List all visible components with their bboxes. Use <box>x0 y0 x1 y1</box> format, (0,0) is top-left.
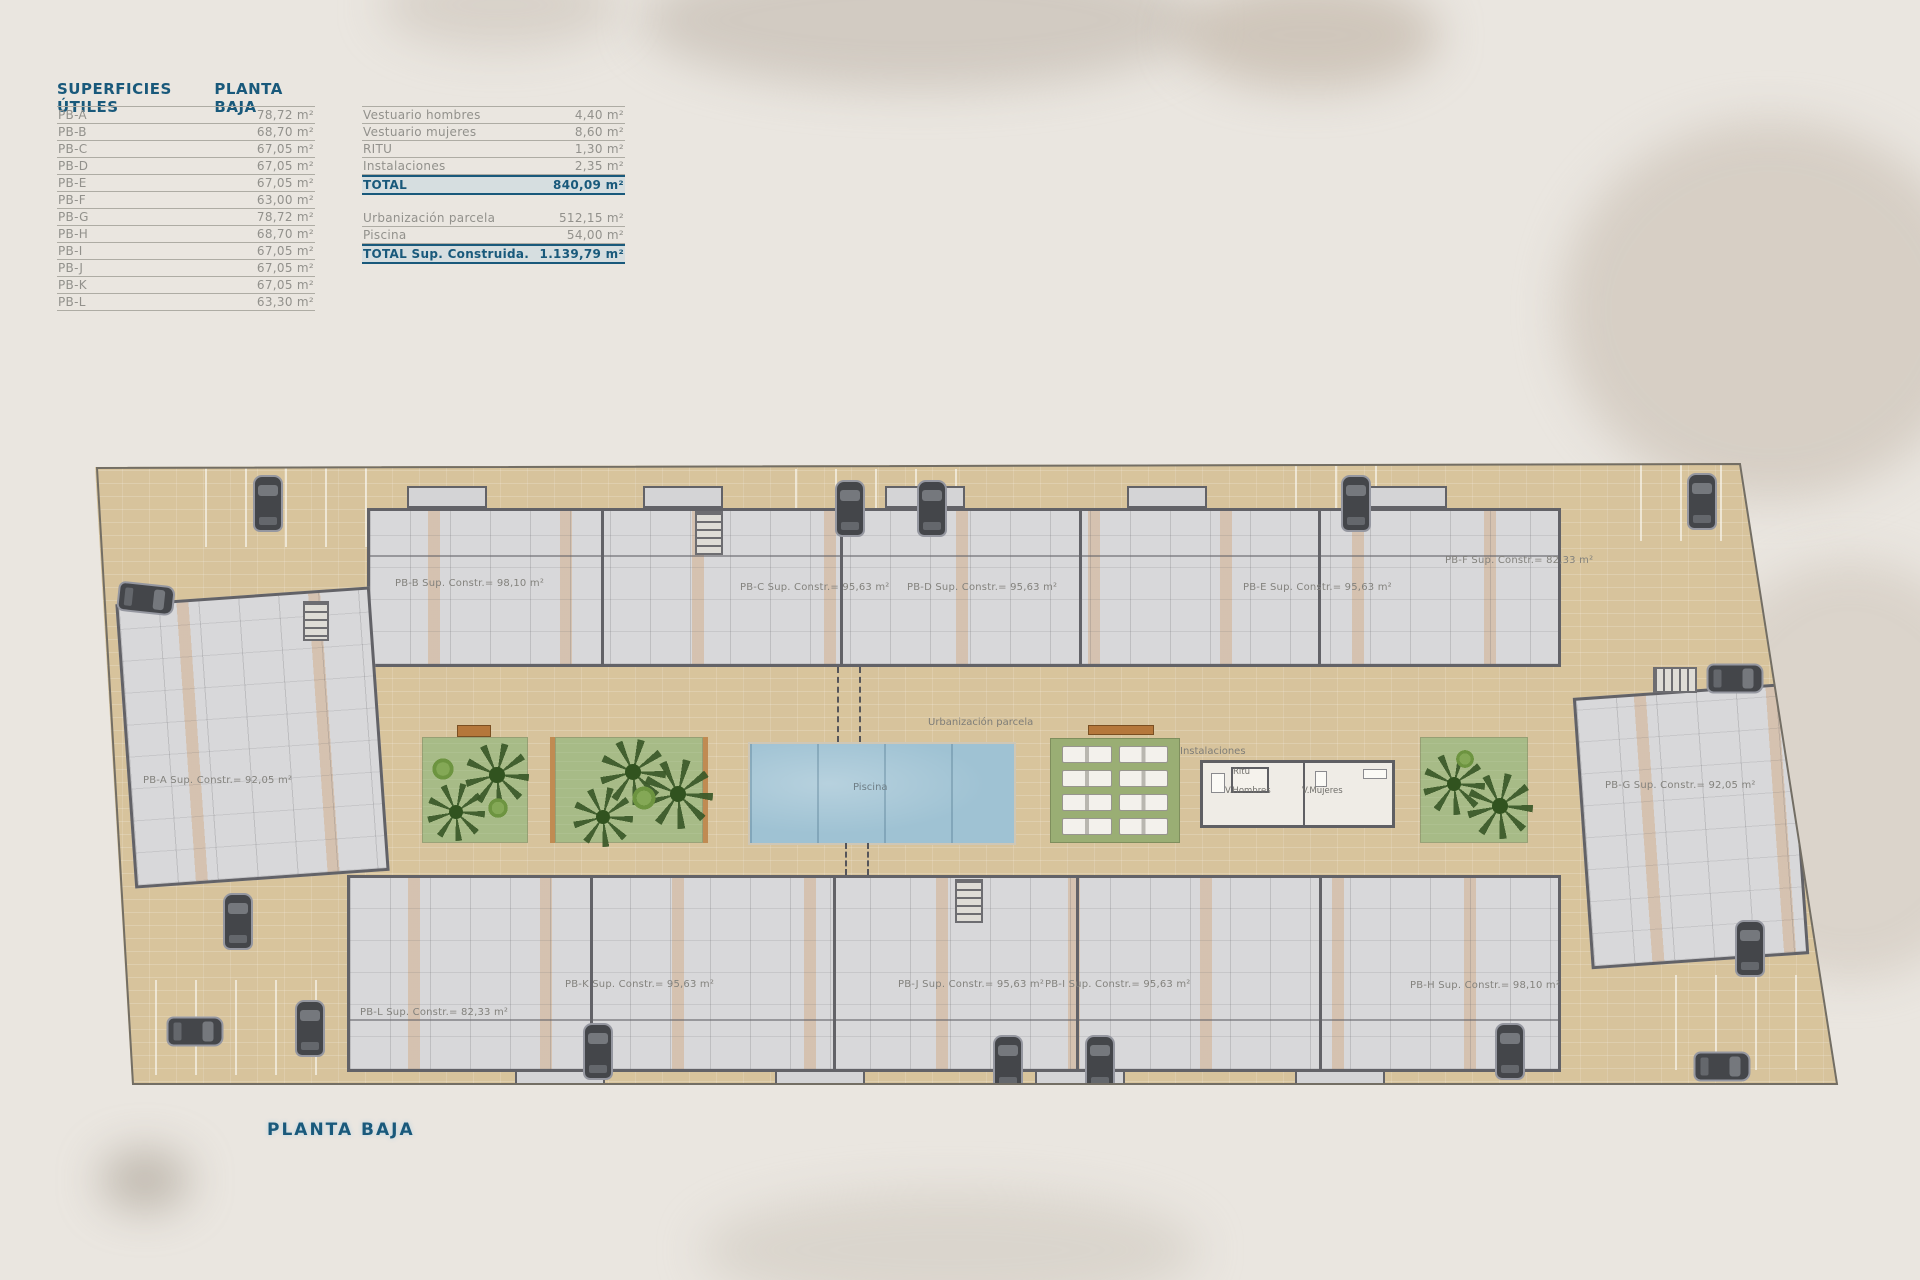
piscina-label: Piscina <box>853 782 888 793</box>
unit-pb-a <box>115 586 389 888</box>
watercolor-blob <box>640 0 1200 90</box>
lounger-icon <box>1062 770 1112 787</box>
watercolor-blob <box>1180 0 1440 90</box>
row-label: RITU <box>363 143 392 156</box>
row-value: 512,15 m² <box>559 212 624 225</box>
car-icon <box>993 1035 1023 1092</box>
row-value: 1,30 m² <box>575 143 624 156</box>
row-label: PB-F <box>58 194 86 207</box>
row-value: 68,70 m² <box>257 228 314 241</box>
car-icon <box>295 1000 325 1057</box>
row-label: PB-E <box>58 177 87 190</box>
shrub-icon <box>431 757 455 781</box>
table-row: PB-J67,05 m² <box>57 260 315 277</box>
table-row: RITU1,30 m² <box>362 141 625 158</box>
plan-caption: PLANTA BAJA <box>267 1120 415 1140</box>
lounger-icon <box>1119 770 1169 787</box>
shrub-icon <box>1455 749 1475 769</box>
bath-pod <box>407 486 487 508</box>
urbanizacion-label: Urbanización parcela <box>928 717 1033 728</box>
unit-label-pb-i: PB-I Sup. Constr.= 95,63 m² <box>1045 979 1190 990</box>
table-row-total: TOTAL840,09 m² <box>362 175 625 195</box>
parking-bays <box>205 467 375 547</box>
row-label: Urbanización parcela <box>363 212 495 225</box>
table-row: PB-D67,05 m² <box>57 158 315 175</box>
garage-pod <box>775 1070 865 1088</box>
row-label: PB-G <box>58 211 89 224</box>
unit-label-pb-c: PB-C Sup. Constr.= 95,63 m² <box>740 582 890 593</box>
unit-divider-wall <box>1319 878 1322 1069</box>
row-label: PB-C <box>58 143 87 156</box>
row-label: TOTAL Sup. Construida. <box>363 248 529 261</box>
car-icon <box>917 480 947 537</box>
instalaciones-label: Instalaciones <box>1180 746 1246 757</box>
row-label: PB-H <box>58 228 88 241</box>
table-row: PB-A78,72 m² <box>57 106 315 124</box>
row-value: 63,00 m² <box>257 194 314 207</box>
sun-deck <box>1050 738 1180 843</box>
unit-pb-g <box>1573 683 1809 970</box>
car-icon <box>1495 1023 1525 1080</box>
table-row: PB-C67,05 m² <box>57 141 315 158</box>
table-row: PB-F63,00 m² <box>57 192 315 209</box>
table-row: Vestuario hombres4,40 m² <box>362 106 625 124</box>
car-icon <box>167 1017 224 1047</box>
table-row: Vestuario mujeres8,60 m² <box>362 124 625 141</box>
shrub-icon <box>487 797 509 819</box>
unit-label-pb-h: PB-H Sup. Constr.= 98,10 m² <box>1410 980 1560 991</box>
unit-label-pb-f: PB-F Sup. Constr.= 82,33 m² <box>1445 555 1593 566</box>
row-value: 67,05 m² <box>257 143 314 156</box>
row-value: 2,35 m² <box>575 160 624 173</box>
watercolor-blob <box>1560 120 1920 500</box>
car-icon <box>1085 1035 1115 1092</box>
stairs <box>695 511 723 555</box>
watercolor-blob <box>100 1150 190 1210</box>
row-label: TOTAL <box>363 179 407 192</box>
row-label: PB-I <box>58 245 83 258</box>
corridor-wall <box>350 1019 1558 1021</box>
lounger-icon <box>1062 746 1112 763</box>
row-value: 78,72 m² <box>257 109 314 122</box>
unit-label-pb-l: PB-L Sup. Constr.= 82,33 m² <box>360 1007 508 1018</box>
row-value: 63,30 m² <box>257 296 314 309</box>
table-row: PB-E67,05 m² <box>57 175 315 192</box>
summary-table: Vestuario hombres4,40 m² Vestuario mujer… <box>362 106 625 264</box>
table-row: Urbanización parcela512,15 m² <box>362 210 625 227</box>
row-label: PB-D <box>58 160 88 173</box>
unit-label-pb-a: PB-A Sup. Constr.= 92,05 m² <box>143 775 292 786</box>
vestuario-hombres-label: V.Hombres <box>1225 786 1271 796</box>
watercolor-blob <box>700 1190 1200 1280</box>
car-icon <box>1694 1052 1751 1082</box>
unit-label-pb-e: PB-E Sup. Constr.= 95,63 m² <box>1243 582 1392 593</box>
row-value: 67,05 m² <box>257 262 314 275</box>
table-row: Instalaciones2,35 m² <box>362 158 625 175</box>
surfaces-table: PB-A78,72 m² PB-B68,70 m² PB-C67,05 m² P… <box>57 106 315 311</box>
floor-plan-sheet: SUPERFICIES ÚTILES PLANTA BAJA PB-A78,72… <box>0 0 1920 1280</box>
palm-tree-icon <box>427 783 485 841</box>
table-row-total: TOTAL Sup. Construida.1.139,79 m² <box>362 244 625 264</box>
garage-pod <box>1295 1070 1385 1088</box>
row-label: PB-J <box>58 262 83 275</box>
lounger-icon <box>1062 794 1112 811</box>
table-row: Piscina54,00 m² <box>362 227 625 244</box>
sink-fixture <box>1363 769 1387 779</box>
passage-dashed <box>845 843 869 875</box>
swimming-pool <box>748 742 1016 845</box>
unit-divider-wall <box>1079 511 1082 664</box>
vestuario-mujeres-label: V.Mujeres <box>1302 786 1343 796</box>
car-icon <box>1707 664 1764 694</box>
row-value: 54,00 m² <box>567 229 624 242</box>
row-label: PB-L <box>58 296 86 309</box>
row-label: Vestuario hombres <box>363 109 481 122</box>
lounger-icon <box>1119 746 1169 763</box>
table-row: PB-G78,72 m² <box>57 209 315 226</box>
car-icon <box>1687 473 1717 530</box>
row-label: PB-B <box>58 126 87 139</box>
stairs <box>955 879 983 923</box>
car-icon <box>116 581 176 617</box>
lounger-icon <box>1119 794 1169 811</box>
bath-pod <box>1367 486 1447 508</box>
corridor-wall <box>370 555 1558 557</box>
table-row: PB-H68,70 m² <box>57 226 315 243</box>
unit-label-pb-d: PB-D Sup. Constr.= 95,63 m² <box>907 582 1057 593</box>
row-value: 1.139,79 m² <box>540 248 624 261</box>
shrub-icon <box>631 785 657 811</box>
car-icon <box>253 475 283 532</box>
site-ground: PB-A Sup. Constr.= 92,05 m² PB-B Sup. Co… <box>95 455 1845 1095</box>
table-row: PB-B68,70 m² <box>57 124 315 141</box>
unit-divider-wall <box>833 878 836 1069</box>
row-value: 67,05 m² <box>257 279 314 292</box>
unit-label-pb-k: PB-K Sup. Constr.= 95,63 m² <box>565 979 714 990</box>
lounger-icon <box>1119 818 1169 835</box>
bath-pod <box>643 486 723 508</box>
car-icon <box>835 480 865 537</box>
row-value: 840,09 m² <box>553 179 624 192</box>
unit-divider-wall <box>1076 878 1079 1069</box>
row-label: Instalaciones <box>363 160 446 173</box>
building-strip-bottom <box>347 875 1561 1072</box>
table-row: PB-K67,05 m² <box>57 277 315 294</box>
row-value: 8,60 m² <box>575 126 624 139</box>
row-value: 78,72 m² <box>257 211 314 224</box>
wc-fixture <box>1211 773 1225 793</box>
row-value: 67,05 m² <box>257 160 314 173</box>
unit-label-pb-g: PB-G Sup. Constr.= 92,05 m² <box>1605 780 1756 791</box>
watercolor-blob <box>380 0 620 50</box>
row-label: Piscina <box>363 229 407 242</box>
lounger-icon <box>1062 818 1112 835</box>
ritu-label: Ritu <box>1233 767 1250 777</box>
unit-divider-wall <box>601 511 604 664</box>
passage-dashed <box>837 667 861 742</box>
car-icon <box>1341 475 1371 532</box>
palm-tree-icon <box>1467 773 1533 839</box>
row-value: 67,05 m² <box>257 245 314 258</box>
unit-label-pb-j: PB-J Sup. Constr.= 95,63 m² <box>898 979 1044 990</box>
stairs <box>303 601 329 641</box>
car-icon <box>223 893 253 950</box>
row-value: 4,40 m² <box>575 109 624 122</box>
stairs <box>1653 667 1697 693</box>
site-plan: PB-A Sup. Constr.= 92,05 m² PB-B Sup. Co… <box>95 455 1845 1095</box>
bench <box>457 725 491 737</box>
car-icon <box>1735 920 1765 977</box>
palm-tree-icon <box>573 787 633 847</box>
table-row: PB-I67,05 m² <box>57 243 315 260</box>
unit-label-pb-b: PB-B Sup. Constr.= 98,10 m² <box>395 578 544 589</box>
row-value: 68,70 m² <box>257 126 314 139</box>
table-gap <box>362 195 625 210</box>
table-row: PB-L63,30 m² <box>57 294 315 311</box>
row-label: PB-K <box>58 279 87 292</box>
row-label: Vestuario mujeres <box>363 126 476 139</box>
row-value: 67,05 m² <box>257 177 314 190</box>
bath-pod <box>1127 486 1207 508</box>
row-label: PB-A <box>58 109 87 122</box>
car-icon <box>583 1023 613 1080</box>
bench <box>1088 725 1154 735</box>
wc-fixture <box>1315 771 1327 787</box>
